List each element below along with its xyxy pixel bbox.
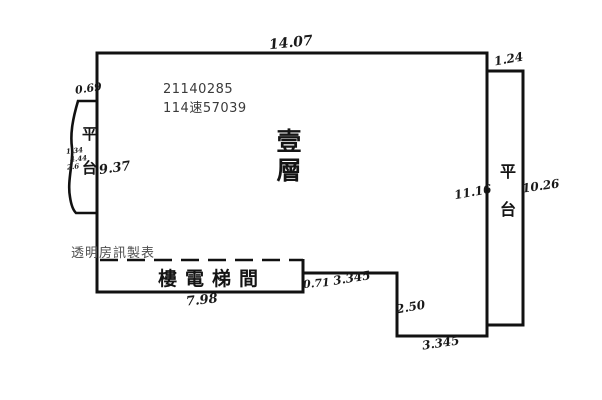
reference-number-2: 114速57039 [163,97,247,116]
reference-number-1: 21140285 [163,82,233,97]
floor-area-label: 壹層 [269,128,305,186]
watermark-text: 透明房訊製表 [71,242,155,261]
right-platform-label: 平台 [494,163,518,239]
floor-plan-sheet: 21140285 114速57039 壹層 平台 平台 樓電梯間 透明房訊製表 … [0,0,602,400]
dim-notch-offset: 0.71 [302,276,330,291]
stair-elevator-room-label: 樓電梯間 [158,264,266,291]
edge-scribble-3: 2.6 [67,162,80,170]
main-floor-outline [97,53,487,336]
